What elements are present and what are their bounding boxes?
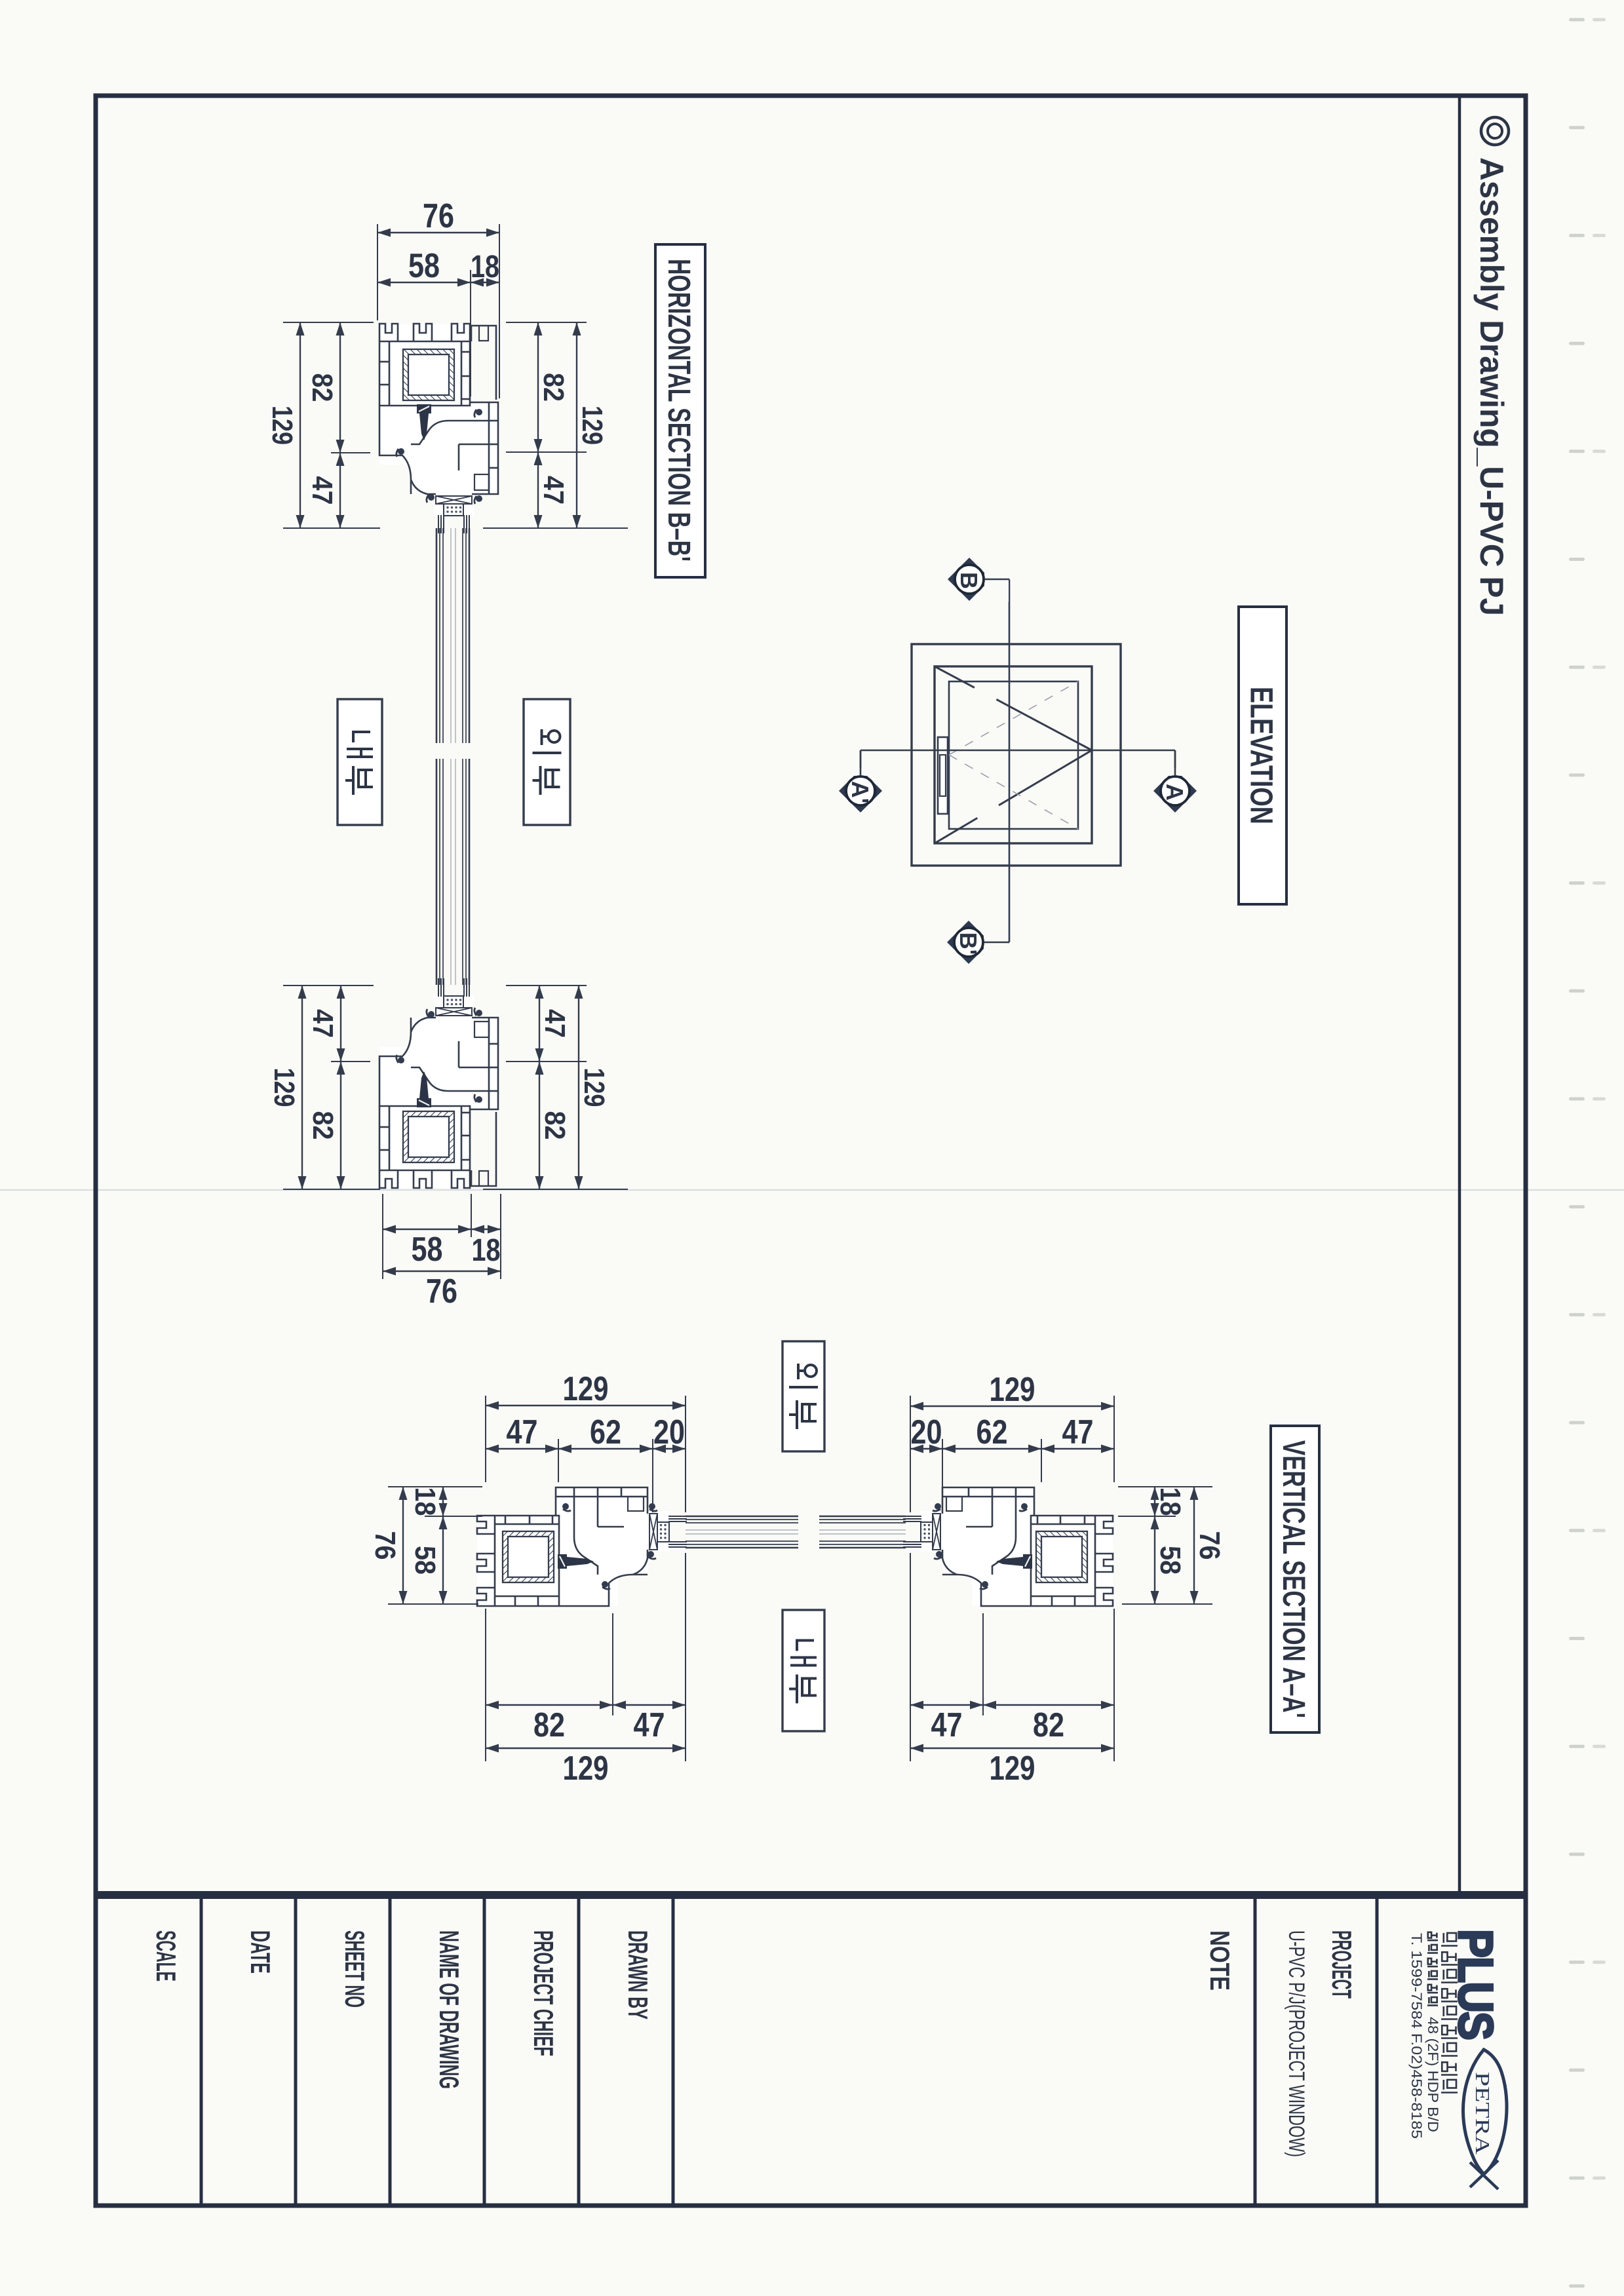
svg-text:82: 82	[537, 373, 570, 402]
svg-text:18: 18	[1154, 1487, 1186, 1516]
svg-text:82: 82	[307, 1111, 339, 1140]
svg-text:B': B'	[955, 932, 982, 955]
svg-text:76: 76	[369, 1531, 401, 1560]
svg-text:47: 47	[931, 1706, 963, 1744]
svg-text:129: 129	[990, 1750, 1035, 1788]
svg-text:47: 47	[306, 476, 338, 505]
svg-text:PROJECT CHIEF: PROJECT CHIEF	[528, 1930, 559, 2056]
svg-text:Assembly Drawing_U-PVC PJ: Assembly Drawing_U-PVC PJ	[1473, 157, 1510, 616]
svg-text:NAME OF DRAWING: NAME OF DRAWING	[434, 1930, 465, 2089]
svg-text:VERTICAL SECTION A–A': VERTICAL SECTION A–A'	[1276, 1440, 1311, 1718]
svg-text:129: 129	[268, 1068, 300, 1107]
svg-text:U-PVC P/J(PROJECT WINDOW): U-PVC P/J(PROJECT WINDOW)	[1284, 1930, 1309, 2157]
svg-text:18: 18	[472, 1233, 501, 1268]
svg-text:HORIZONTAL SECTION B–B': HORIZONTAL SECTION B–B'	[661, 259, 696, 562]
svg-text:PETRA: PETRA	[1471, 2072, 1494, 2155]
svg-text:A: A	[1161, 784, 1188, 801]
svg-text:129: 129	[563, 1370, 609, 1408]
svg-text:82: 82	[539, 1111, 571, 1140]
svg-text:20: 20	[911, 1413, 942, 1451]
svg-text:48 (2F) HDP B/D: 48 (2F) HDP B/D	[1425, 2017, 1441, 2132]
svg-text:T. 1599-7584 F.02)458-8185: T. 1599-7584 F.02)458-8185	[1408, 1933, 1425, 2139]
svg-text:129: 129	[563, 1750, 609, 1788]
svg-text:58: 58	[412, 1231, 443, 1269]
svg-text:PROJECT: PROJECT	[1326, 1930, 1357, 1999]
svg-text:ELEVATION: ELEVATION	[1244, 687, 1279, 824]
svg-text:DATE: DATE	[245, 1930, 276, 1974]
svg-text:47: 47	[307, 1009, 339, 1038]
svg-text:58: 58	[1154, 1546, 1186, 1575]
svg-text:A': A'	[847, 781, 874, 804]
svg-text:18: 18	[471, 250, 499, 284]
svg-text:47: 47	[539, 1009, 571, 1038]
svg-text:76: 76	[423, 197, 454, 235]
svg-text:47: 47	[634, 1706, 665, 1744]
svg-text:DRAWN BY: DRAWN BY	[623, 1930, 653, 2019]
svg-text:58: 58	[408, 247, 440, 285]
svg-text:129: 129	[266, 406, 298, 445]
svg-text:82: 82	[306, 373, 338, 402]
svg-text:B: B	[956, 572, 982, 589]
svg-text:SHEET NO: SHEET NO	[339, 1930, 370, 2008]
svg-text:129: 129	[990, 1371, 1035, 1409]
svg-text:82: 82	[1033, 1706, 1064, 1744]
svg-text:58: 58	[409, 1546, 441, 1575]
svg-text:47: 47	[507, 1413, 538, 1451]
svg-text:76: 76	[426, 1272, 457, 1311]
svg-text:18: 18	[409, 1487, 441, 1516]
svg-text:62: 62	[590, 1413, 621, 1451]
svg-text:129: 129	[578, 1068, 610, 1107]
svg-text:20: 20	[653, 1413, 685, 1451]
svg-text:SCALE: SCALE	[151, 1930, 182, 1981]
svg-text:47: 47	[1062, 1413, 1094, 1451]
svg-text:76: 76	[1193, 1531, 1226, 1560]
svg-text:62: 62	[976, 1413, 1008, 1451]
svg-text:NOTE: NOTE	[1205, 1930, 1235, 1991]
svg-text:47: 47	[537, 476, 570, 505]
svg-text:129: 129	[576, 406, 608, 445]
svg-text:82: 82	[533, 1706, 565, 1744]
